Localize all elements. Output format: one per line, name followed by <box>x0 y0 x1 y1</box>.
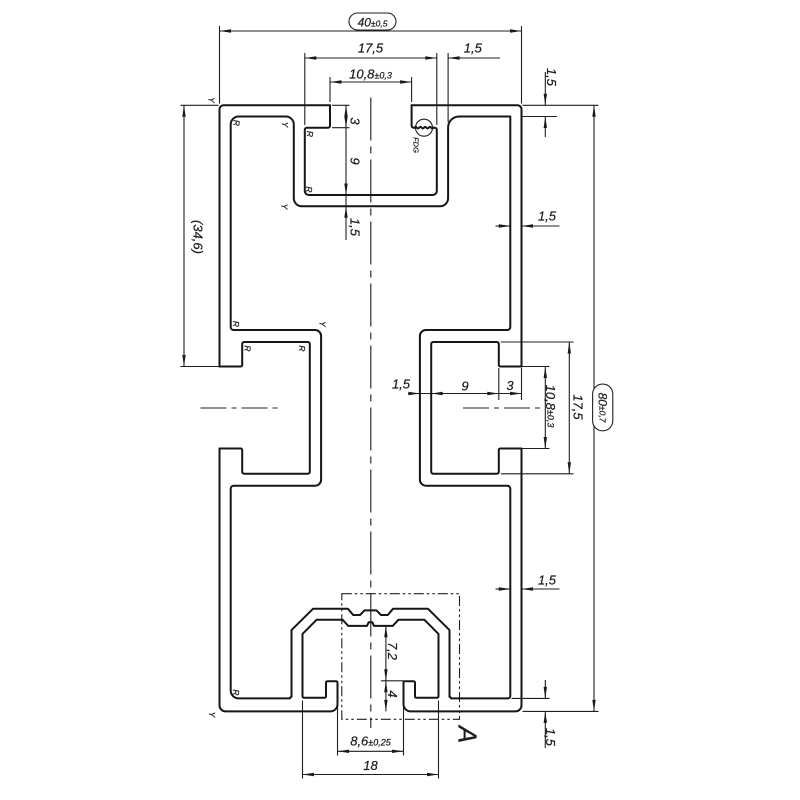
svg-text:17,5: 17,5 <box>358 41 384 56</box>
svg-text:40±0,5: 40±0,5 <box>358 16 388 30</box>
svg-text:17,5: 17,5 <box>571 394 586 420</box>
svg-text:R: R <box>231 321 241 327</box>
svg-text:18: 18 <box>363 758 378 773</box>
svg-text:7,2: 7,2 <box>385 642 400 661</box>
svg-text:R: R <box>297 345 307 351</box>
svg-text:R: R <box>232 120 242 126</box>
svg-text:R: R <box>304 186 314 192</box>
svg-text:A: A <box>453 724 483 743</box>
svg-text:1,5: 1,5 <box>538 573 557 588</box>
svg-text:80±0,7: 80±0,7 <box>596 393 610 423</box>
svg-text:1,5: 1,5 <box>392 377 411 392</box>
svg-text:R: R <box>305 131 315 137</box>
svg-text:FDG: FDG <box>412 137 421 153</box>
svg-text:1,5: 1,5 <box>348 218 363 237</box>
svg-text:9: 9 <box>348 157 363 164</box>
svg-text:4: 4 <box>385 690 400 697</box>
svg-text:(34,6): (34,6) <box>191 220 206 254</box>
svg-text:3: 3 <box>348 117 363 125</box>
svg-text:R: R <box>243 345 253 351</box>
svg-text:1,5: 1,5 <box>538 209 557 224</box>
svg-text:1,5: 1,5 <box>544 68 559 87</box>
svg-text:1,5: 1,5 <box>464 41 483 56</box>
svg-text:R: R <box>231 689 241 695</box>
svg-text:1,5: 1,5 <box>543 728 558 747</box>
svg-text:9: 9 <box>461 379 468 394</box>
svg-text:3: 3 <box>506 378 514 393</box>
